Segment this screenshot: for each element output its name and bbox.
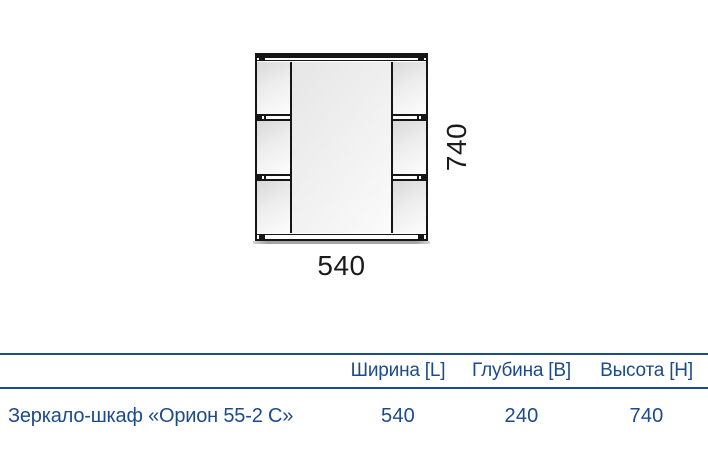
mirror-panel — [292, 62, 391, 233]
column-header-width: Ширина [L] — [338, 360, 458, 382]
shelf-compartment — [257, 62, 290, 114]
shelf-compartment — [393, 121, 426, 173]
shelf-clip — [418, 56, 424, 60]
shelf-divider — [393, 114, 426, 121]
shelf-compartment — [393, 62, 426, 114]
column-header-height: Высота [H] — [585, 360, 708, 382]
height-dimension-label-wrap: 740 — [436, 53, 478, 241]
table-row: Зеркало-шкаф «Орион 55-2 С» 540 240 740 — [0, 389, 708, 428]
cabinet-bottom-shelf-line — [257, 234, 426, 235]
shelf-clip — [259, 235, 265, 239]
shelf-compartment — [257, 121, 290, 173]
shelf-column-left — [257, 62, 292, 233]
shelf-compartment — [393, 181, 426, 233]
height-dimension-label: 740 — [443, 123, 471, 171]
cabinet-shadow — [253, 241, 430, 244]
shelf-column-right — [391, 62, 426, 233]
value-width: 540 — [338, 405, 458, 428]
column-header-depth: Глубина [B] — [458, 360, 585, 382]
width-dimension-label: 540 — [255, 252, 428, 280]
product-spec-page: 540 740 Ширина [L] Глубина [B] Высота [H… — [0, 0, 708, 465]
value-height: 740 — [585, 405, 708, 428]
shelf-divider — [257, 114, 290, 121]
shelf-clip — [259, 56, 265, 60]
product-name: Зеркало-шкаф «Орион 55-2 С» — [0, 405, 338, 428]
cabinet-top-panel — [257, 55, 426, 58]
cabinet-top-shelf-line — [257, 60, 426, 61]
cabinet-drawing — [255, 53, 428, 241]
shelf-compartment — [257, 181, 290, 233]
shelf-divider — [393, 174, 426, 181]
value-depth: 240 — [458, 405, 585, 428]
spec-table: Ширина [L] Глубина [B] Высота [H] Зеркал… — [0, 353, 708, 428]
spec-table-header: Ширина [L] Глубина [B] Высота [H] — [0, 353, 708, 389]
cabinet-body — [257, 62, 426, 233]
shelf-divider — [257, 174, 290, 181]
shelf-clip — [418, 235, 424, 239]
